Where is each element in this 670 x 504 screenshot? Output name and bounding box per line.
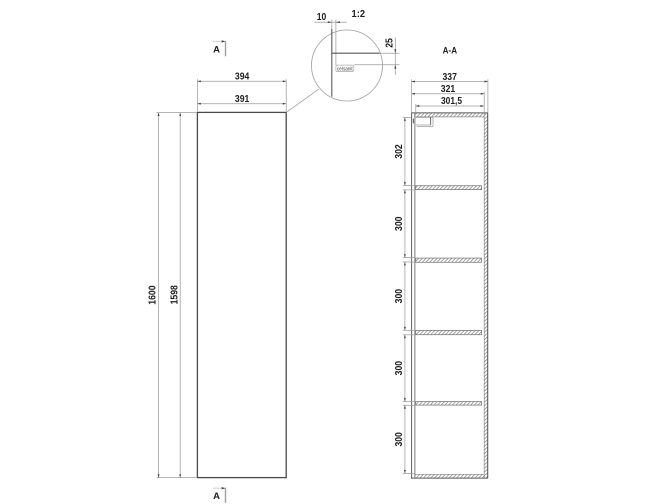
svg-text:300: 300 [394, 361, 405, 375]
svg-text:1598: 1598 [169, 285, 180, 305]
svg-text:A: A [213, 45, 220, 56]
svg-text:A: A [213, 491, 220, 502]
svg-text:1600: 1600 [148, 286, 159, 305]
svg-text:1:2: 1:2 [352, 9, 366, 20]
svg-text:337: 337 [443, 72, 457, 83]
svg-text:25: 25 [385, 38, 396, 48]
svg-text:391: 391 [235, 94, 250, 105]
svg-text:394: 394 [235, 72, 250, 83]
svg-text:300: 300 [394, 217, 405, 231]
svg-text:302: 302 [394, 144, 405, 158]
svg-text:301,5: 301,5 [441, 96, 463, 107]
svg-text:cersanit: cersanit [337, 66, 353, 72]
svg-text:321: 321 [441, 84, 456, 95]
svg-text:300: 300 [394, 432, 405, 446]
svg-text:300: 300 [394, 289, 405, 303]
svg-text:A-A: A-A [443, 46, 458, 57]
svg-text:10: 10 [317, 12, 327, 23]
